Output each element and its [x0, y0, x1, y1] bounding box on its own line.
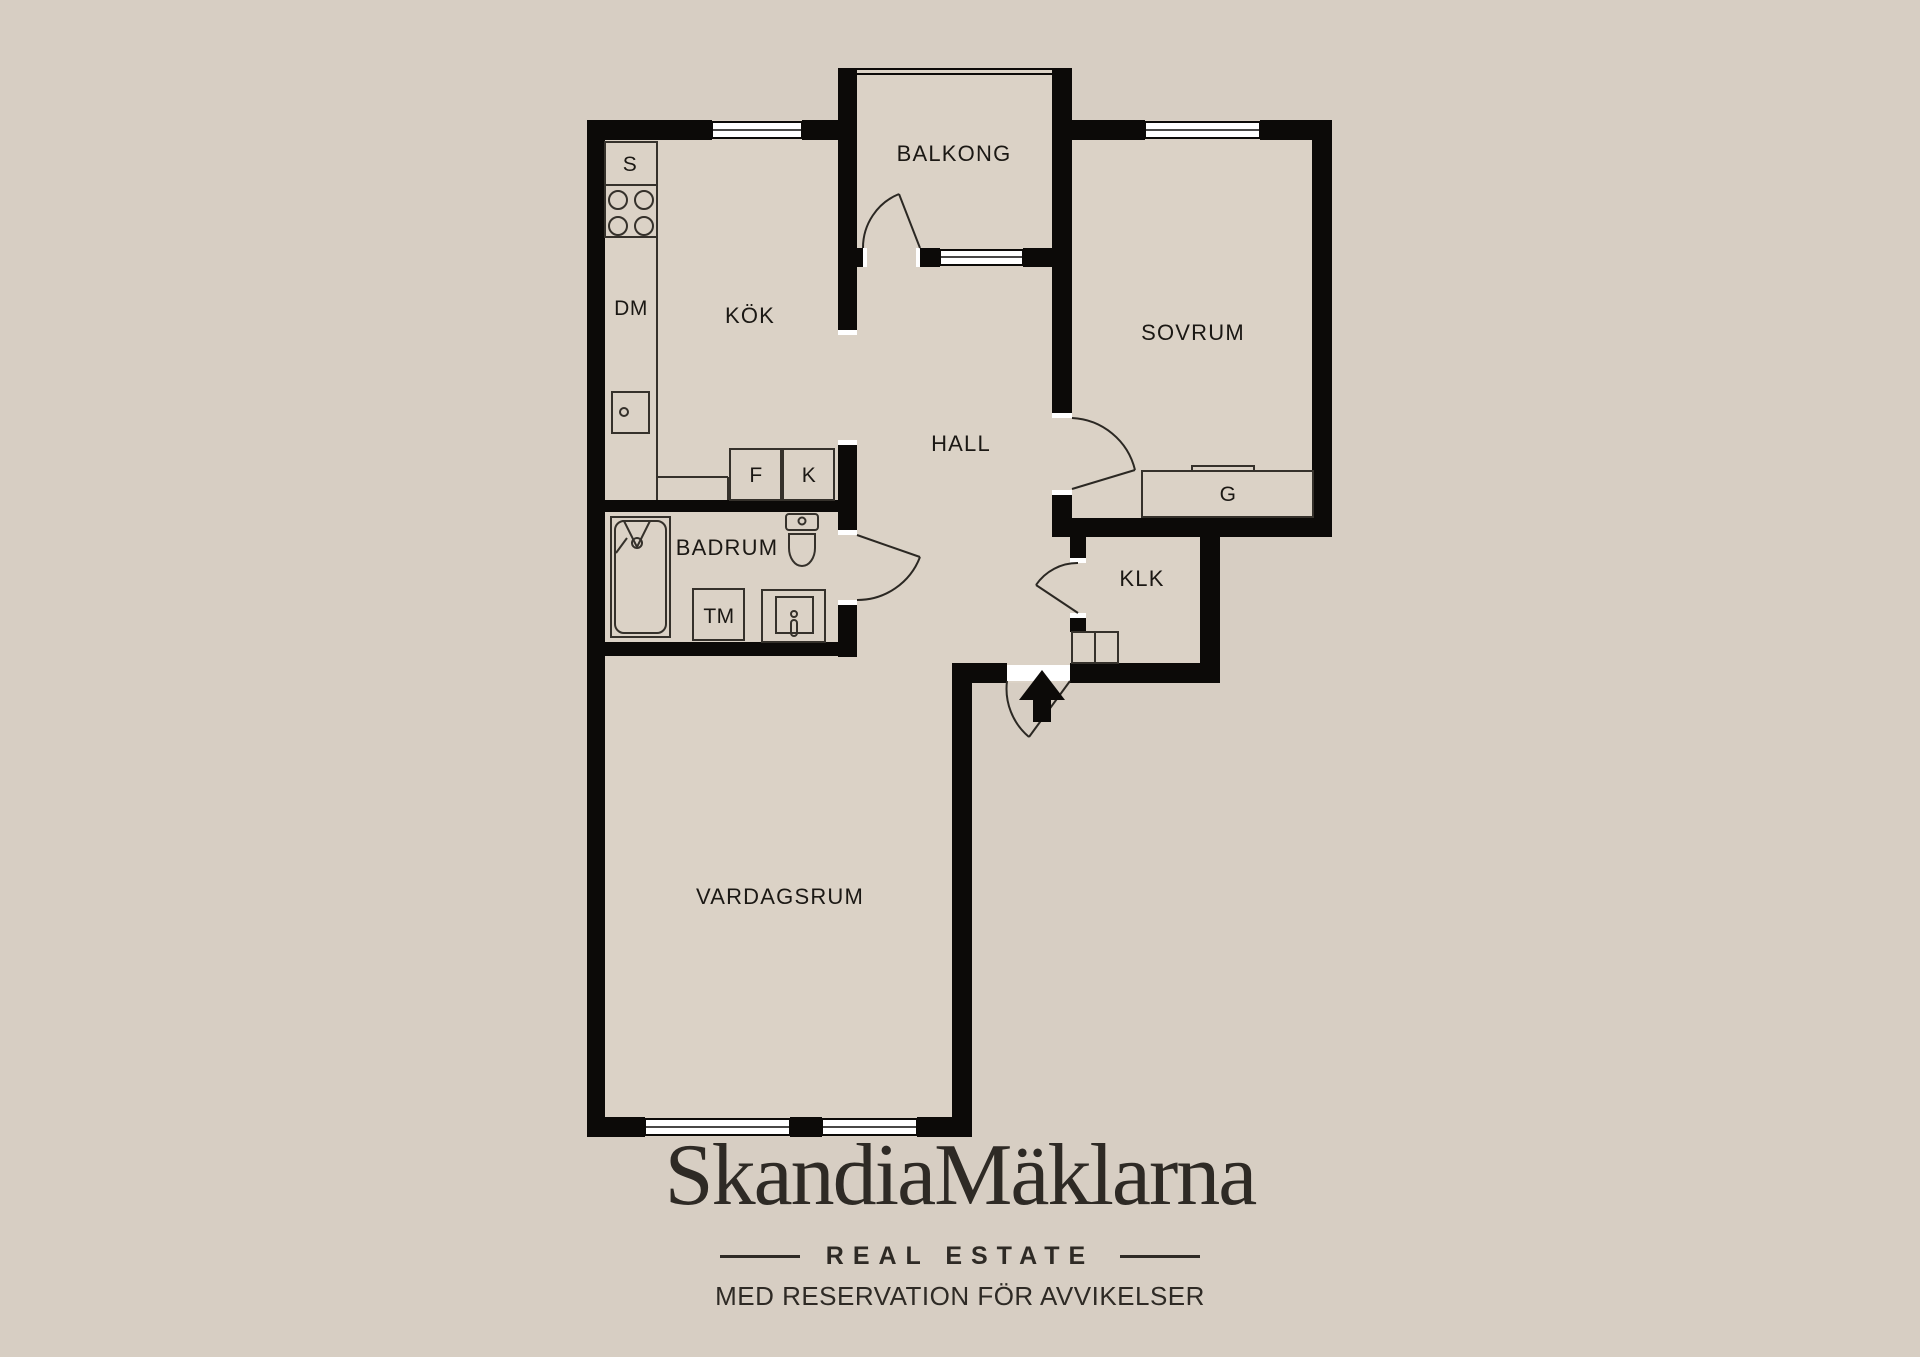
room-label-hall: HALL — [931, 431, 991, 456]
fixture-label-s: S — [623, 153, 638, 176]
room-label-badrum: BADRUM — [676, 535, 779, 560]
room-label-vardagsrum: VARDAGSRUM — [696, 884, 864, 909]
brand-logo: SkandiaMäklarna REAL ESTATE MED RESERVAT… — [0, 1132, 1920, 1312]
room-label-kok: KÖK — [725, 303, 775, 328]
fixture-label-dm: DM — [614, 297, 648, 320]
room-label-sovrum: SOVRUM — [1141, 320, 1245, 345]
brand-disclaimer: MED RESERVATION FÖR AVVIKELSER — [0, 1281, 1920, 1312]
floorplan-page: BALKONG KÖK SOVRUM HALL BADRUM KLK VARDA… — [0, 0, 1920, 1357]
floor-balcony — [838, 68, 1072, 267]
brand-tagline: REAL ESTATE — [826, 1242, 1094, 1271]
tagline-right-dash — [1120, 1255, 1200, 1258]
brand-tagline-row: REAL ESTATE — [0, 1242, 1920, 1271]
tagline-left-dash — [720, 1255, 800, 1258]
fixture-label-tm: TM — [703, 605, 734, 628]
fixture-label-f: F — [749, 464, 762, 487]
brand-logo-name: SkandiaMäklarna — [0, 1132, 1920, 1220]
room-label-klk: KLK — [1119, 566, 1164, 591]
fixture-label-k: K — [802, 464, 817, 487]
fixture-label-g: G — [1220, 483, 1237, 506]
room-label-balkong: BALKONG — [897, 141, 1012, 166]
